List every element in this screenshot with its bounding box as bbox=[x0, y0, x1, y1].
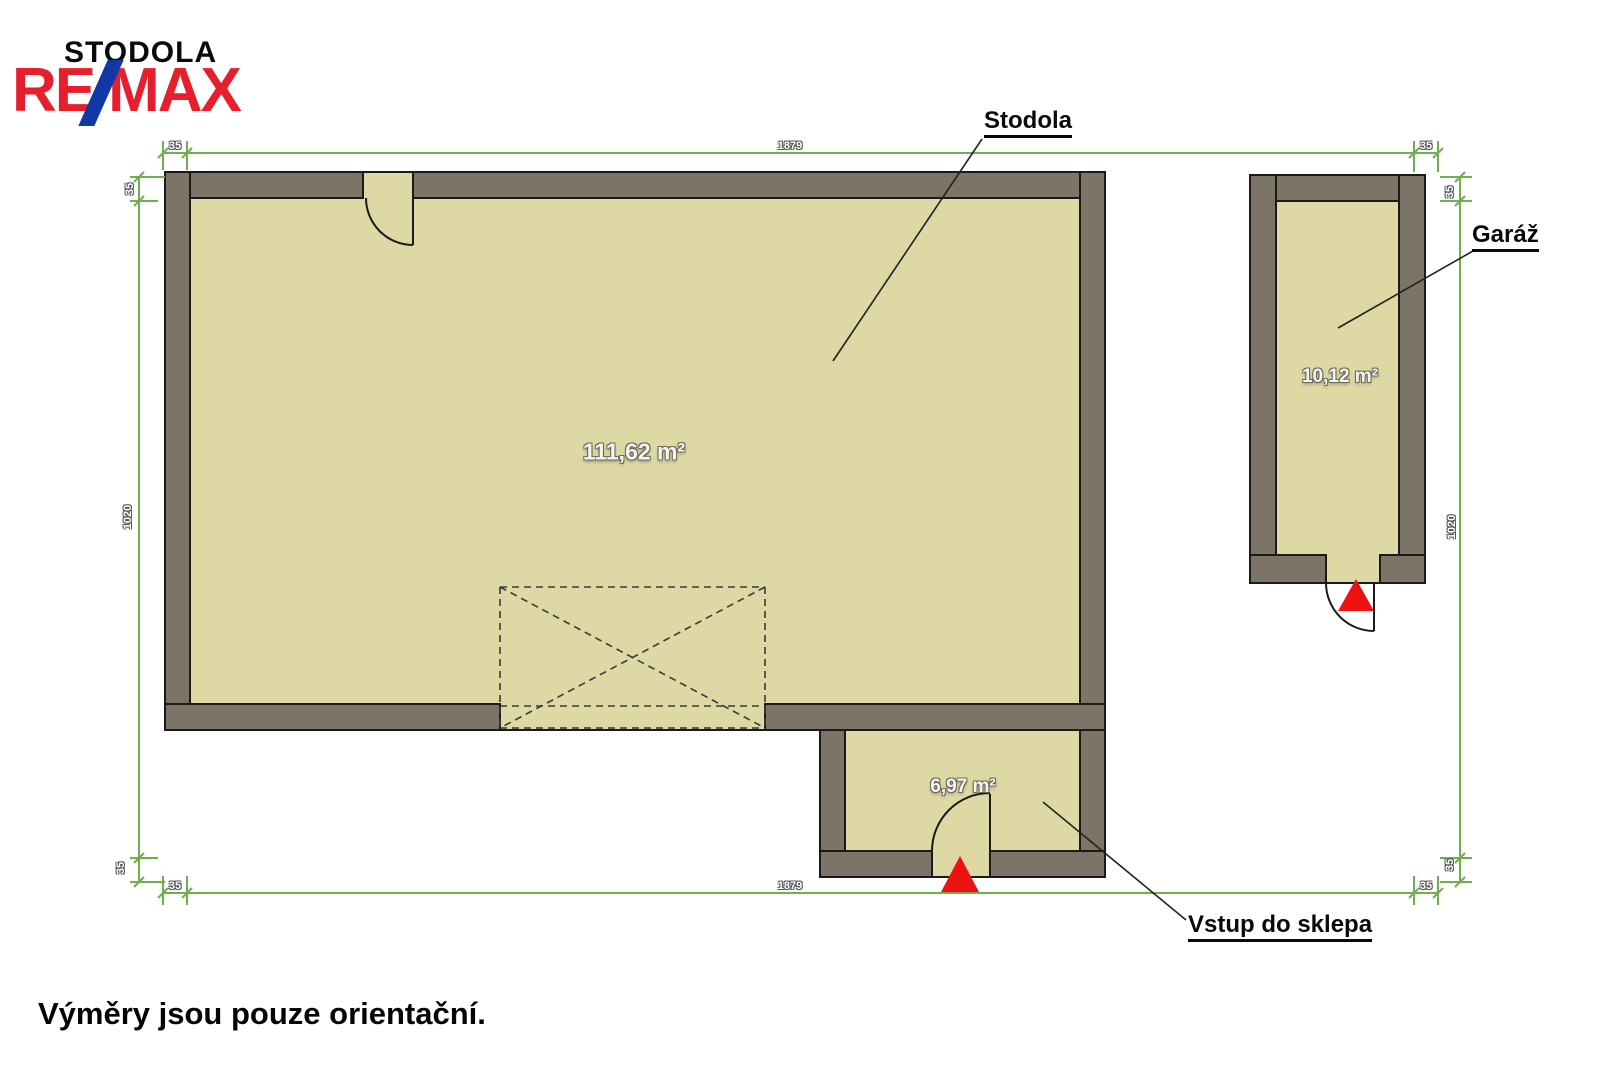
barn-left-wall bbox=[165, 172, 190, 730]
dim-right-bottom: 35 bbox=[1444, 859, 1456, 871]
area-label-sklep: 6,97 m² bbox=[930, 776, 995, 798]
dim-left-bottom: 35 bbox=[115, 862, 127, 874]
callout-garaz: Garáž bbox=[1472, 222, 1539, 252]
area-label-garaz: 10,12 m² bbox=[1302, 366, 1378, 388]
barn-top-wall-left bbox=[165, 172, 363, 198]
remax-logo: RE MAX bbox=[12, 60, 240, 122]
garage-bottom-wall-left bbox=[1250, 555, 1326, 583]
callout-vstup-do-sklepa: Vstup do sklepa bbox=[1188, 912, 1372, 942]
callout-stodola: Stodola bbox=[984, 108, 1072, 138]
barn-bottom-wall-left bbox=[165, 704, 500, 730]
cellar-entry-bottom-wall-left bbox=[820, 851, 932, 877]
garage-left-wall bbox=[1250, 175, 1276, 583]
dim-top-right: 35 bbox=[1420, 140, 1432, 152]
floor-plan-drawing bbox=[0, 0, 1600, 1066]
area-label-stodola: 111,62 m² bbox=[583, 439, 685, 466]
cellar-entry-bottom-wall-right bbox=[990, 851, 1105, 877]
garage-bottom-wall-right bbox=[1380, 555, 1425, 583]
dim-bottom-left: 35 bbox=[169, 880, 181, 892]
garage-right-wall bbox=[1399, 175, 1425, 583]
barn-bottom-wall-right bbox=[765, 704, 1105, 730]
dim-right-top: 35 bbox=[1444, 186, 1456, 198]
dim-left-top: 35 bbox=[124, 183, 136, 195]
barn-floor bbox=[165, 172, 1105, 877]
disclaimer-text: Výměry jsou pouze orientační. bbox=[38, 996, 486, 1032]
dim-top-left: 35 bbox=[169, 140, 181, 152]
dim-bottom-center: 1879 bbox=[778, 880, 802, 892]
barn-right-wall bbox=[1080, 172, 1105, 877]
remax-logo-max: MAX bbox=[108, 60, 240, 122]
barn-top-wall-right bbox=[413, 172, 1105, 198]
dim-bottom-right: 35 bbox=[1420, 880, 1432, 892]
dim-left-center: 1020 bbox=[122, 505, 134, 529]
remax-logo-re: RE bbox=[12, 60, 94, 122]
dim-right-center: 1020 bbox=[1446, 515, 1458, 539]
dim-top-center: 1879 bbox=[778, 140, 802, 152]
